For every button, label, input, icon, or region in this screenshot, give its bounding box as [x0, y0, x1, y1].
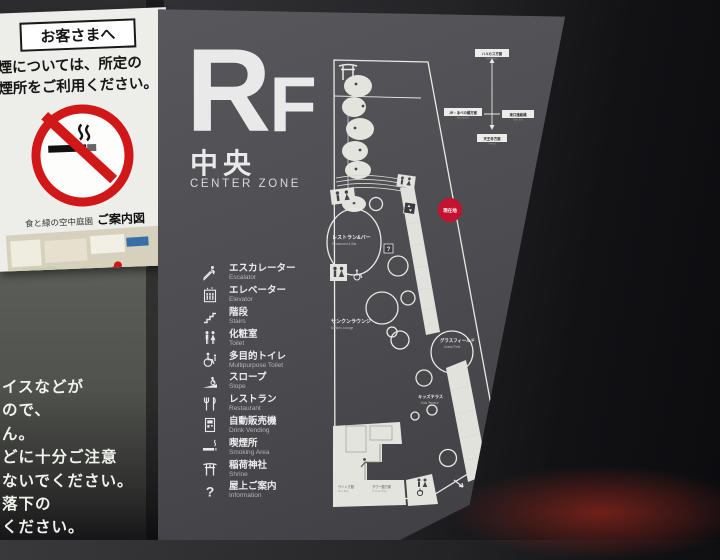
info-chip: ?: [384, 244, 393, 253]
legend-label-en: Restaurant: [229, 405, 277, 412]
legend-row: スロープ Slope: [202, 371, 296, 393]
svg-text:Restaurant & Bar: Restaurant & Bar: [332, 242, 357, 246]
legend-row: 化粧室 Toilet: [202, 327, 296, 349]
direction-compass: ハルカス方面 HARUKAS JR・あべの橋方面 Abenobashi 東口連絡…: [444, 49, 534, 146]
legend-label-jp: 化粧室: [229, 330, 258, 340]
legend-row: 階段 Stairs: [202, 306, 296, 328]
elevator-chip: [403, 202, 415, 214]
map-legend: エスカレーター Escalator エレベーター Elevator 階段 Sta…: [202, 262, 296, 502]
svg-text:Sunken Lounge: Sunken Lounge: [331, 326, 354, 330]
you-are-here-badge: 現在地: [438, 198, 462, 222]
elevator-icon: [202, 287, 220, 303]
building-label-right: タワー館方面: [372, 484, 392, 489]
building-label-left: ウイング館: [338, 484, 355, 489]
floor-letter-f: F: [269, 60, 317, 148]
legend-label-jp: 自動販売機: [229, 417, 277, 427]
legend-row: エスカレーター Escalator: [202, 262, 296, 284]
information-icon: ?: [202, 483, 220, 499]
slope-icon: [202, 374, 220, 390]
vending-icon-map: [439, 474, 445, 483]
right-walkway: [446, 360, 488, 482]
legend-label-en: Escalator: [229, 274, 296, 281]
mini-map-block: [44, 238, 87, 263]
vending-icon: [202, 417, 220, 433]
warning-line: ください。: [2, 516, 154, 539]
legend-label-en: Drink Vending: [229, 427, 277, 434]
legend-label-en: Stairs: [229, 318, 248, 325]
no-smoking-icon: [30, 103, 136, 209]
legend-label-en: Information: [229, 492, 277, 499]
legend-label-jp: 階段: [229, 308, 248, 318]
warning-line: 落下の: [2, 493, 154, 516]
toilet-icon: [202, 330, 220, 346]
notice-header: お客さまへ: [19, 18, 136, 51]
svg-text:Grass Field: Grass Field: [444, 345, 461, 349]
legend-label-en: Multipurpose Toilet: [229, 362, 286, 369]
warning-line: ので、: [2, 399, 154, 422]
legend-label-jp: 稲荷神社: [229, 461, 267, 471]
legend-row: レストラン Restaurant: [202, 393, 296, 415]
warning-line: イスなどが: [2, 376, 154, 399]
legend-label-jp: 喫煙所: [229, 439, 269, 449]
restaurant-icon: [202, 396, 220, 412]
compass-right: 東口連絡橋: [509, 112, 528, 117]
legend-row: エレベーター Elevator: [202, 284, 296, 306]
warning-line: どに十分ご注意: [2, 446, 154, 469]
floor-map: レストラン&バー Restaurant & Bar サンクンラウンジ Sunke…: [320, 46, 540, 514]
compass-left: JR・あべの橋方面: [449, 110, 478, 115]
grass-field-label: グラスフィールド: [440, 337, 475, 344]
sunken-lounge-label: サンクンラウンジ: [331, 318, 371, 325]
legend-label-en: Shrine: [229, 471, 267, 478]
zone-name-jp: 中央: [190, 142, 256, 182]
kids-terrace-label: キッズテラス: [418, 393, 443, 400]
wheelchair-icon-map: [354, 269, 362, 280]
legend-label-jp: レストラン: [229, 395, 277, 405]
toilet-chip-lower: [330, 264, 347, 281]
svg-text:Wing Bldg.: Wing Bldg.: [338, 491, 349, 493]
floor-letter-r: R: [186, 25, 269, 157]
legend-label-en: Toilet: [229, 340, 258, 347]
legend-label-en: Smoking Area: [229, 449, 269, 456]
bottom-walk: [406, 474, 438, 506]
svg-text:Abenobashi: Abenobashi: [457, 117, 470, 120]
shrine-icon: [202, 461, 220, 477]
escalator-icon: [202, 265, 220, 281]
svg-text:?: ?: [387, 246, 391, 253]
svg-text:HARUKAS: HARUKAS: [486, 58, 498, 61]
red-light-reflection: [450, 465, 720, 560]
floor-title: RF: [186, 32, 317, 150]
svg-text:To Tower Bldg.: To Tower Bldg.: [372, 490, 387, 493]
legend-label-jp: エレベーター: [229, 286, 286, 296]
legend-row: 自動販売機 Drink Vending: [202, 415, 296, 437]
stairs-icon: [202, 308, 220, 324]
legend-row: 稲荷神社 Shrine: [202, 458, 296, 480]
accessible-toilet-icon: [202, 352, 220, 368]
warning-text: イスなどがので、ん。どに十分ご注意ないでください。落下のください。: [2, 376, 154, 540]
walkway-toilet-chip: [396, 174, 415, 188]
mini-map-block: [10, 239, 42, 267]
legend-label-en: Slope: [229, 383, 266, 390]
svg-text:East Exit: East Exit: [513, 119, 523, 122]
legend-row: 多目的トイレ Multipurpose Toilet: [202, 349, 296, 371]
zone-name-en: CENTER ZONE: [190, 178, 301, 190]
svg-text:?: ?: [206, 483, 215, 499]
legend-row: ? 屋上ご案内 Information: [202, 480, 296, 502]
legend-label-jp: 屋上ご案内: [229, 482, 277, 492]
warning-line: ん。: [2, 423, 154, 446]
svg-text:現在地: 現在地: [443, 207, 457, 214]
toilet-chip-upper: [330, 187, 356, 205]
compass-top: ハルカス方面: [482, 51, 503, 56]
legend-label-jp: スロープ: [229, 373, 266, 383]
legend-label-jp: 多目的トイレ: [229, 352, 286, 362]
svg-text:Kids Terrace: Kids Terrace: [421, 401, 439, 405]
notice-mini-map: 喫煙所: [6, 225, 169, 272]
customer-notice: お客さまへ 喫煙については、所定の 喫煙所をご利用ください。 食と緑の空中庭園ご…: [0, 7, 176, 272]
warning-line: ないでください。: [2, 470, 154, 493]
bottom-building: ウイング館 Wing Bldg. タワー館方面 To Tower Bldg.: [333, 422, 406, 507]
rooftop-sign-panel: RF 中央 CENTER ZONE エスカレーター Escalator エレベー…: [158, 6, 568, 540]
legend-label-jp: エスカレーター: [229, 264, 296, 274]
restaurant-bar-label: レストラン&バー: [332, 234, 371, 241]
legend-label-en: Elevator: [229, 296, 286, 303]
smoking-icon: [202, 439, 220, 455]
legend-row: 喫煙所 Smoking Area: [202, 436, 296, 458]
mini-map-blue-chip: [126, 236, 149, 246]
compass-bottom: 天王寺方面: [484, 136, 502, 141]
svg-text:Tennoji: Tennoji: [488, 143, 496, 146]
mini-map-block: [90, 234, 125, 254]
